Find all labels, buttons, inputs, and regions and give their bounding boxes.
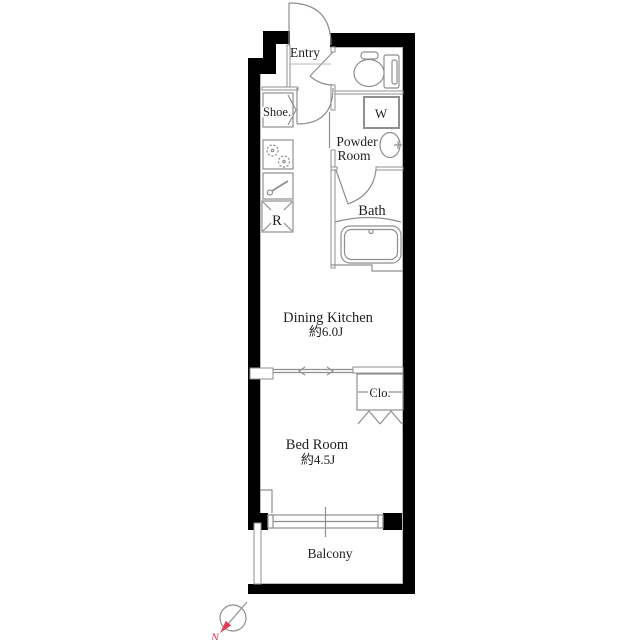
bedroom-label: Bed Room bbox=[286, 437, 349, 453]
bathtub-icon bbox=[335, 218, 401, 264]
wall-segment bbox=[403, 33, 415, 594]
wall-segment bbox=[383, 513, 403, 530]
bath-bottom-wall bbox=[331, 265, 403, 271]
dining-kitchen-size-label: 約6.0J bbox=[309, 324, 343, 339]
corridor-door-icon bbox=[297, 88, 333, 124]
bath-door-jamb-left bbox=[331, 167, 337, 170]
washer-label: W bbox=[375, 106, 388, 121]
compass-north-label: N bbox=[210, 630, 220, 640]
shoe-cabinet-label: Shoe. bbox=[263, 105, 291, 119]
toilet-icon bbox=[354, 52, 399, 88]
refrigerator-label: R bbox=[272, 213, 282, 229]
wall-segment bbox=[248, 60, 260, 523]
bath-door-jamb-right bbox=[376, 167, 403, 170]
stove-icon bbox=[263, 140, 293, 169]
toilet-wall-jamb bbox=[331, 47, 335, 52]
balcony-railing bbox=[254, 523, 261, 584]
entry-door-icon bbox=[289, 3, 331, 45]
sliding-window-icon bbox=[268, 507, 383, 537]
entry-label: Entry bbox=[290, 45, 320, 60]
closet-label: Clo. bbox=[369, 386, 390, 400]
bedroom-size-label: 約4.5J bbox=[301, 452, 335, 467]
compass-icon: N bbox=[210, 602, 247, 640]
duct-notch bbox=[260, 490, 272, 513]
wall-segment bbox=[248, 584, 415, 594]
washbasin-icon bbox=[380, 133, 402, 158]
floorplan-page: N Entry Shoe. Powder Room W Bath R Dinin… bbox=[0, 0, 640, 640]
floorplan-svg: N Entry Shoe. Powder Room W Bath R Dinin… bbox=[0, 0, 640, 640]
bifold-door-icon bbox=[358, 411, 402, 424]
toilet-powder-divider bbox=[335, 91, 403, 94]
powder-room-label-line1: Powder bbox=[336, 134, 378, 149]
hall-bottom-wall bbox=[262, 87, 298, 90]
powder-room-label-line2: Room bbox=[337, 148, 371, 163]
wall-segment bbox=[330, 33, 415, 47]
balcony-label: Balcony bbox=[308, 546, 353, 561]
bath-door-icon bbox=[336, 170, 376, 204]
kitchen-sink-icon bbox=[263, 173, 293, 199]
bath-label: Bath bbox=[358, 203, 386, 219]
